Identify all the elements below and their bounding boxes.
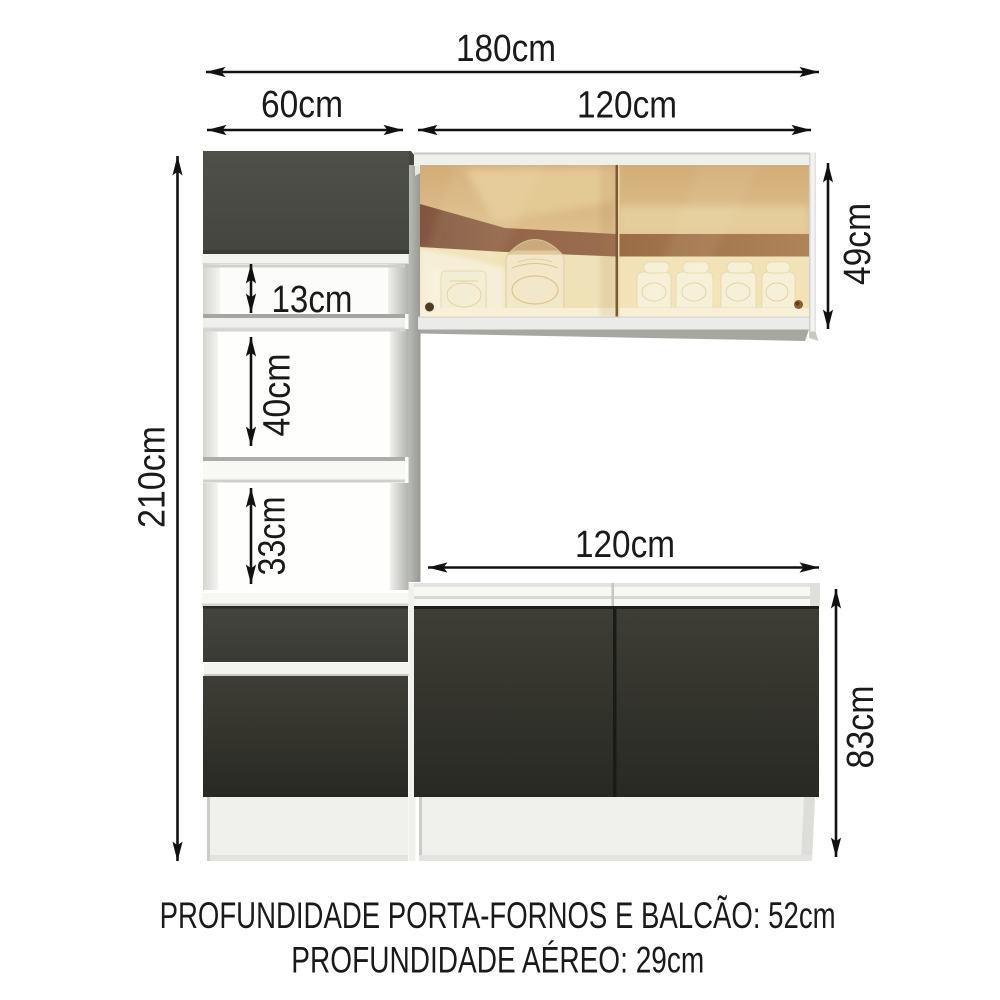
svg-text:49cm: 49cm — [837, 203, 879, 285]
svg-text:210cm: 210cm — [132, 426, 174, 528]
svg-text:180cm: 180cm — [456, 28, 556, 70]
svg-text:PROFUNDIDADE AÉREO: 29cm: PROFUNDIDADE AÉREO: 29cm — [291, 940, 704, 981]
svg-text:120cm: 120cm — [575, 524, 675, 566]
svg-text:120cm: 120cm — [577, 85, 677, 127]
svg-text:83cm: 83cm — [840, 686, 882, 769]
svg-text:60cm: 60cm — [261, 84, 343, 126]
svg-text:40cm: 40cm — [257, 354, 299, 437]
svg-text:13cm: 13cm — [272, 279, 353, 321]
svg-text:PROFUNDIDADE PORTA-FORNOS E BA: PROFUNDIDADE PORTA-FORNOS E BALCÃO: 52cm — [160, 895, 836, 936]
svg-text:33cm: 33cm — [252, 497, 294, 576]
